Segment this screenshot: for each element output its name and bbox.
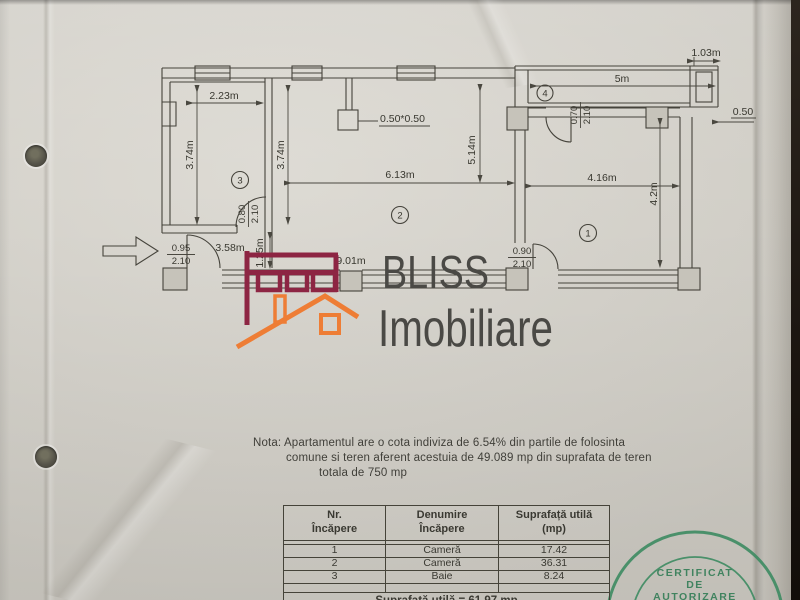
- table-header-denumire: Denumire Încăpere: [386, 506, 499, 540]
- note-line-2: comune si teren aferent acestuia de 49.0…: [286, 451, 652, 466]
- dim-3-58: 3.58m: [215, 242, 244, 254]
- note-line-3: totala de 750 mp: [319, 466, 652, 481]
- door-balcony-w: 0.70: [569, 106, 580, 125]
- door-bath-h: 2.10: [250, 205, 261, 224]
- dim-1-03: 1.03m: [691, 47, 720, 59]
- header-suprafata-line2: (mp): [499, 523, 609, 537]
- door-label-bath: 0.80 2.10: [237, 201, 261, 227]
- door-label-entrance: 0.95 2.10: [167, 243, 195, 267]
- logo-brand-text: BLISS: [382, 246, 489, 298]
- room3-bottom-wall: [162, 225, 237, 233]
- room-3-badge: 3: [232, 172, 249, 189]
- room-4-number: 4: [542, 89, 547, 100]
- room-1-number: 1: [585, 229, 590, 240]
- row2-suprafata: 36.31: [499, 558, 609, 570]
- dim-9-01: 9.01m: [336, 255, 365, 267]
- dim-column: 0.50*0.50: [380, 113, 425, 125]
- row1-nr: 1: [284, 545, 386, 557]
- pillar: [340, 271, 362, 291]
- room-1-badge: 1: [580, 225, 597, 242]
- table-footer-total: Suprafață utilă = 61.97 mp: [284, 593, 609, 600]
- door-label-balcony: 0.70 2.10: [569, 102, 593, 128]
- left-wall-notch: [162, 102, 176, 126]
- table-header-row: Nr. Încăpere Denumire Încăpere Suprafață…: [284, 506, 609, 540]
- header-nr-line1: Nr.: [284, 509, 385, 523]
- table-row: 1 Cameră 17.42: [284, 545, 609, 558]
- header-suprafata-line1: Suprafață utilă: [499, 509, 609, 523]
- bottom-window-band: [558, 270, 678, 288]
- room-2-badge: 2: [392, 207, 409, 224]
- dim-5m: 5m: [615, 73, 630, 85]
- pillar: [507, 107, 528, 130]
- room-3-number: 3: [237, 176, 242, 187]
- door-balcony-h: 2.10: [582, 106, 593, 125]
- header-nr-line2: Încăpere: [284, 523, 385, 537]
- row2-nr: 2: [284, 558, 386, 570]
- pillar: [506, 268, 528, 290]
- dim-4-2: 4.2m: [648, 182, 660, 206]
- door-room1-w: 0.90: [513, 246, 532, 257]
- note-block: Nota: Apartamentul are o cota indiviza d…: [253, 436, 652, 480]
- entrance-arrow-icon: [103, 237, 158, 265]
- table-row: 3 Baie 8.24: [284, 571, 609, 584]
- table-empty-row: [284, 584, 609, 593]
- room1-door-arc: [533, 244, 558, 269]
- photo-background: 2.23m 3.74m 3.74m 0.50*0.50 5.14m 6.13m …: [0, 0, 800, 600]
- stamp-line2: DE: [686, 579, 704, 591]
- partition-room1: [515, 130, 525, 243]
- column-stub: [346, 78, 352, 110]
- dim-5-14: 5.14m: [466, 135, 478, 164]
- dim-6-13: 6.13m: [385, 169, 414, 181]
- dim-2-23: 2.23m: [209, 90, 238, 102]
- stamp-line1: CERTIFICAT: [657, 567, 734, 579]
- door-entrance-w: 0.95: [172, 243, 191, 254]
- table-row: 2 Cameră 36.31: [284, 558, 609, 571]
- dim-3-74-right: 3.74m: [275, 140, 287, 169]
- pillar: [678, 268, 700, 290]
- door-room1-h: 2.10: [513, 259, 532, 270]
- dim-0-50: 0.50: [733, 106, 754, 118]
- table-header-suprafata: Suprafață utilă (mp): [499, 506, 609, 540]
- balcony-shaft-inner: [696, 72, 712, 102]
- row1-denumire: Cameră: [386, 545, 499, 557]
- header-denumire-line1: Denumire: [386, 509, 498, 523]
- door-label-room1: 0.90 2.10: [508, 246, 536, 270]
- balcony-parapet: [528, 103, 690, 107]
- row1-suprafata: 17.42: [499, 545, 609, 557]
- dim-3-74-left: 3.74m: [184, 140, 196, 169]
- balcony-door-arc: [546, 117, 571, 142]
- row3-denumire: Baie: [386, 571, 499, 583]
- partition-room3: [265, 78, 272, 268]
- left-wall: [162, 68, 170, 233]
- room-4-badge: 4: [537, 85, 553, 101]
- area-table: Nr. Încăpere Denumire Încăpere Suprafață…: [283, 505, 610, 600]
- room-2-number: 2: [397, 211, 402, 222]
- table-header-nr: Nr. Încăpere: [284, 506, 386, 540]
- row3-suprafata: 8.24: [499, 571, 609, 583]
- logo-subtitle-text: Imobiliare: [378, 300, 553, 358]
- header-denumire-line2: Încăpere: [386, 523, 498, 537]
- door-entrance-h: 2.10: [172, 256, 191, 267]
- dimension-labels: 2.23m 3.74m 3.74m 0.50*0.50 5.14m 6.13m …: [167, 47, 753, 270]
- bliss-logo: BLISS Imobiliare: [237, 246, 553, 358]
- row2-denumire: Cameră: [386, 558, 499, 570]
- dim-4-16: 4.16m: [587, 172, 616, 184]
- pillar: [646, 107, 668, 128]
- right-wall: [680, 117, 692, 268]
- stamp-line3: AUTORIZARE: [653, 591, 737, 600]
- column-050: [338, 110, 358, 130]
- pillar: [163, 268, 187, 290]
- row3-nr: 3: [284, 571, 386, 583]
- note-line-1: Nota: Apartamentul are o cota indiviza d…: [253, 436, 652, 451]
- door-bath-w: 0.80: [237, 205, 248, 224]
